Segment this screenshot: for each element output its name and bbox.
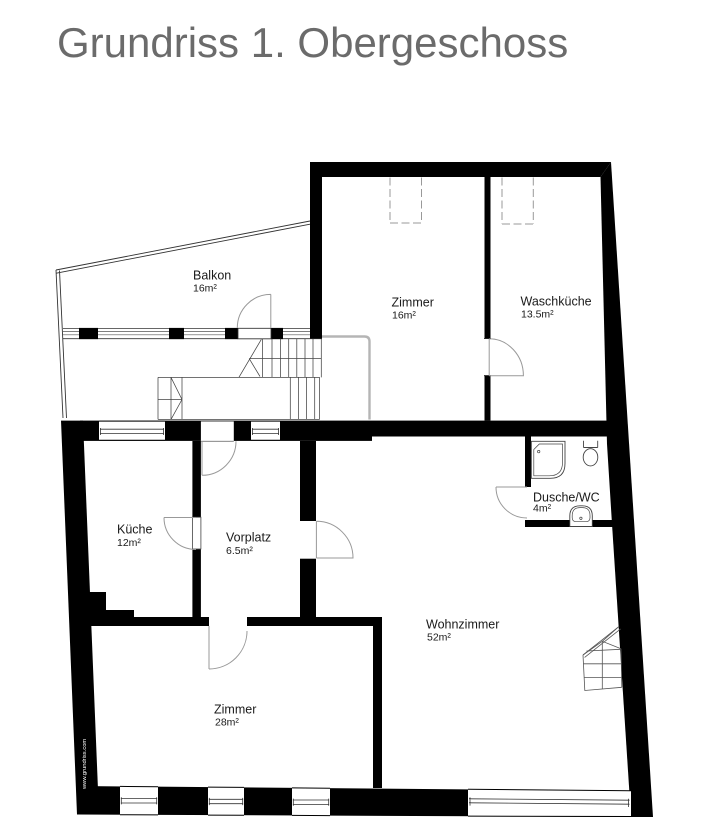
svg-text:Wohnzimmer: Wohnzimmer [426, 618, 499, 632]
svg-text:www.grundriss.com: www.grundriss.com [82, 739, 88, 790]
svg-text:Waschküche: Waschküche [521, 295, 592, 309]
svg-text:52m²: 52m² [427, 632, 451, 644]
svg-text:12m²: 12m² [117, 537, 141, 549]
svg-text:Zimmer: Zimmer [392, 296, 434, 310]
svg-text:Balkon: Balkon [193, 269, 231, 283]
svg-text:4m²: 4m² [533, 503, 552, 515]
svg-text:13.5m²: 13.5m² [521, 309, 554, 321]
svg-text:16m²: 16m² [392, 310, 416, 322]
svg-text:6.5m²: 6.5m² [226, 545, 253, 557]
svg-text:28m²: 28m² [215, 717, 239, 729]
svg-text:Zimmer: Zimmer [214, 703, 256, 717]
svg-text:Grundriss 1. Obergeschoss: Grundriss 1. Obergeschoss [57, 19, 568, 66]
svg-text:Küche: Küche [117, 523, 152, 537]
svg-text:16m²: 16m² [193, 283, 217, 295]
svg-text:Vorplatz: Vorplatz [226, 531, 271, 545]
